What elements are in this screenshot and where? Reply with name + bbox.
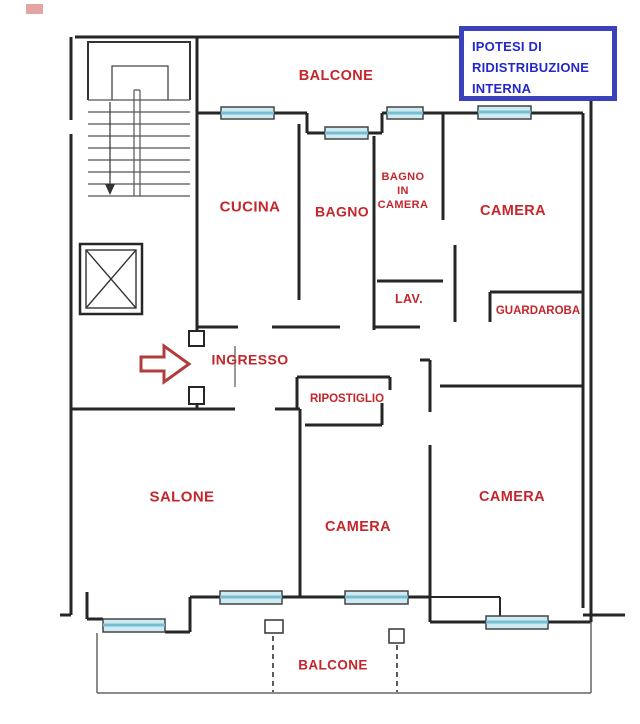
- window-marker: [103, 619, 165, 632]
- room-label-camera-bottom-middle: CAMERA: [325, 518, 391, 536]
- balcony-door-thresholds: [265, 620, 404, 643]
- plan-title-line-2: RIDISTRIBUZIONE: [472, 57, 608, 78]
- room-label-bagno: BAGNO: [315, 203, 369, 221]
- room-label-salone: SALONE: [150, 489, 215, 508]
- plan-title-box: IPOTESI DI RIDISTRIBUZIONE INTERNA: [459, 26, 617, 101]
- window-marker: [486, 616, 548, 629]
- room-label-guardaroba: GUARDAROBA: [496, 304, 580, 318]
- window-marker: [478, 106, 531, 119]
- room-label-ingresso: INGRESSO: [211, 351, 288, 369]
- red-corner-mark: [26, 4, 43, 14]
- window-marker: [325, 127, 368, 139]
- plan-title-line-3: INTERNA: [472, 78, 608, 99]
- elevator-icon: [80, 244, 142, 314]
- room-label-camera-bottom-right: CAMERA: [479, 488, 545, 506]
- window-marker: [387, 107, 423, 119]
- room-label-lav: LAV.: [395, 292, 423, 308]
- room-label-ripostiglio: RIPOSTIGLIO: [310, 392, 384, 406]
- room-label-balcone-bottom: BALCONE: [298, 658, 368, 675]
- room-label-balcone-top: BALCONE: [299, 67, 374, 85]
- room-label-camera-top-right: CAMERA: [480, 202, 546, 220]
- window-marker: [220, 591, 282, 604]
- window-marker: [221, 107, 274, 119]
- window-marker: [345, 591, 408, 604]
- stairs-icon: [88, 42, 190, 196]
- room-label-bagno-in-camera: BAGNO IN CAMERA: [378, 170, 429, 212]
- room-label-cucina: CUCINA: [220, 199, 281, 218]
- entrance-arrow-icon: [141, 346, 189, 382]
- plan-title-line-1: IPOTESI DI: [472, 36, 608, 57]
- floorplan-page: BALCONE CUCINA BAGNO BAGNO IN CAMERA CAM…: [0, 0, 640, 724]
- floorplan-drawing: [0, 0, 640, 724]
